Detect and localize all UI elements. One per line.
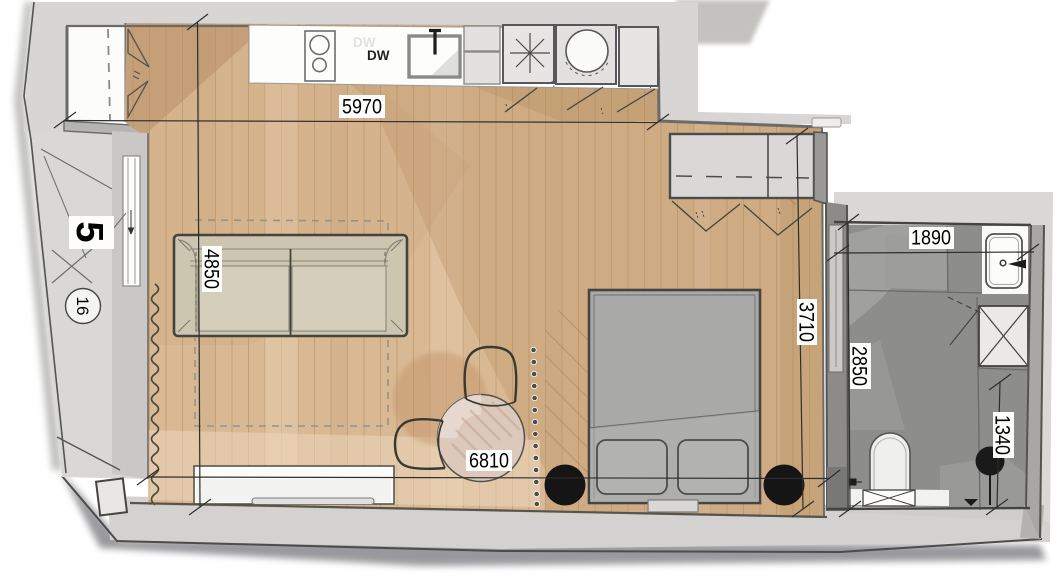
svg-text:3710: 3710 <box>795 302 818 342</box>
svg-text:16: 16 <box>73 297 92 316</box>
svg-text:4850: 4850 <box>200 249 223 289</box>
svg-text:1340: 1340 <box>991 415 1014 455</box>
svg-text:1890: 1890 <box>911 227 951 250</box>
svg-text:6810: 6810 <box>469 450 509 473</box>
svg-text:5970: 5970 <box>342 96 382 119</box>
svg-text:2850: 2850 <box>848 346 871 386</box>
svg-text:DW: DW <box>367 48 390 63</box>
svg-text:5: 5 <box>68 221 110 242</box>
